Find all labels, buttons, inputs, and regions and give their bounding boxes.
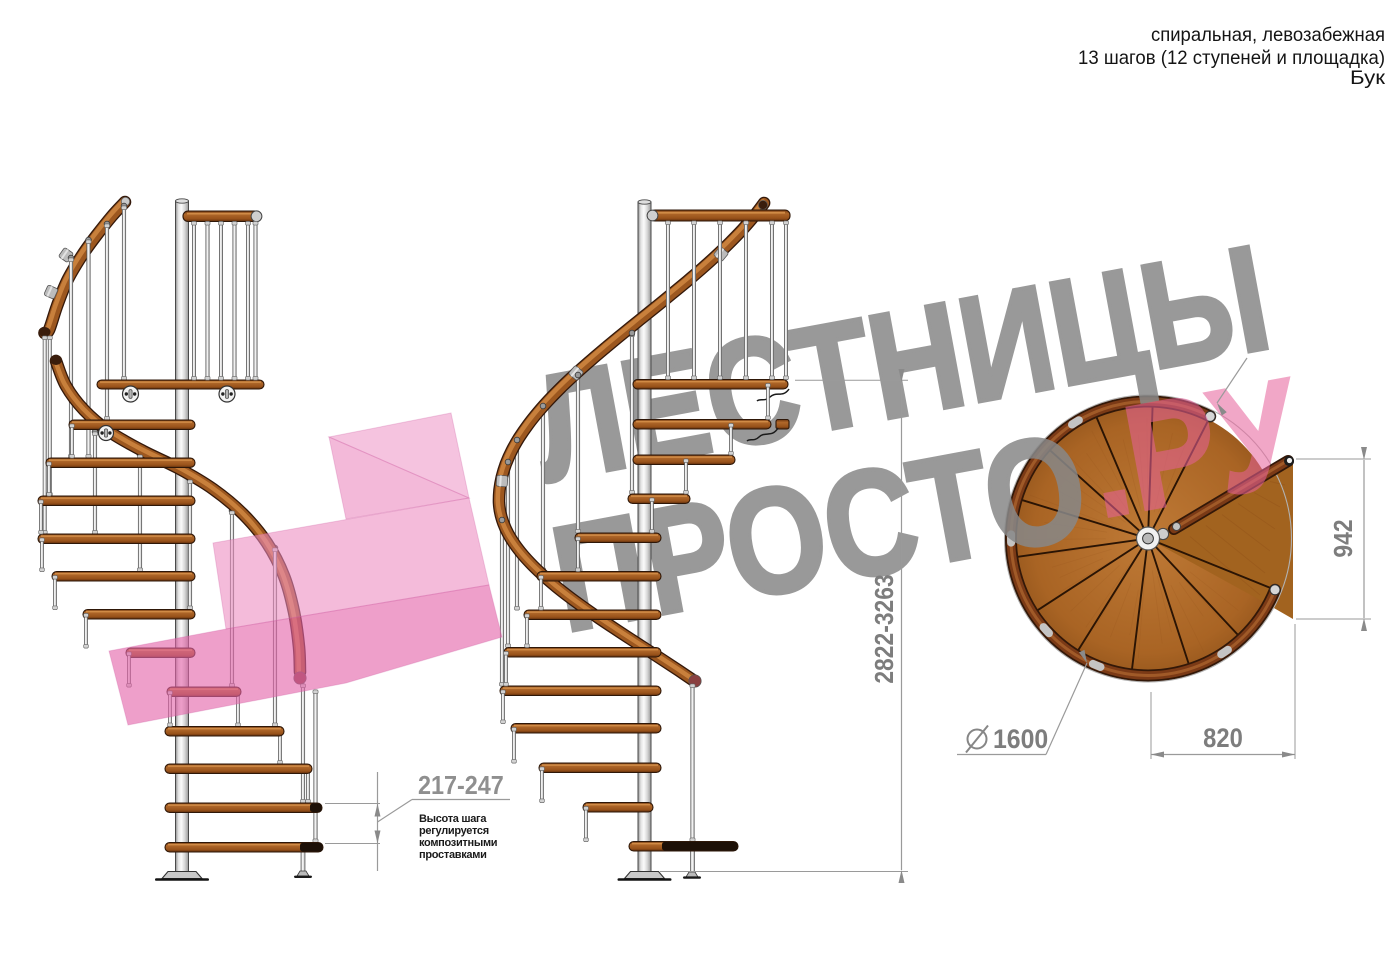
svg-text:проставками: проставками (419, 849, 487, 861)
svg-text:13 шагов (12 ступеней и площад: 13 шагов (12 ступеней и площадка) (1078, 47, 1385, 69)
svg-text:1600: 1600 (993, 725, 1048, 754)
svg-text:регулируется: регулируется (419, 825, 489, 837)
svg-text:217-247: 217-247 (418, 772, 504, 800)
svg-text:820: 820 (1203, 724, 1243, 754)
svg-text:Высота шага: Высота шага (419, 813, 487, 825)
svg-text:композитными: композитными (419, 837, 497, 849)
svg-text:942: 942 (1330, 519, 1359, 557)
svg-text:спиральная, левозабежная: спиральная, левозабежная (1151, 24, 1385, 46)
svg-text:2822-3263: 2822-3263 (871, 574, 900, 683)
svg-text:Бук: Бук (1350, 67, 1386, 89)
